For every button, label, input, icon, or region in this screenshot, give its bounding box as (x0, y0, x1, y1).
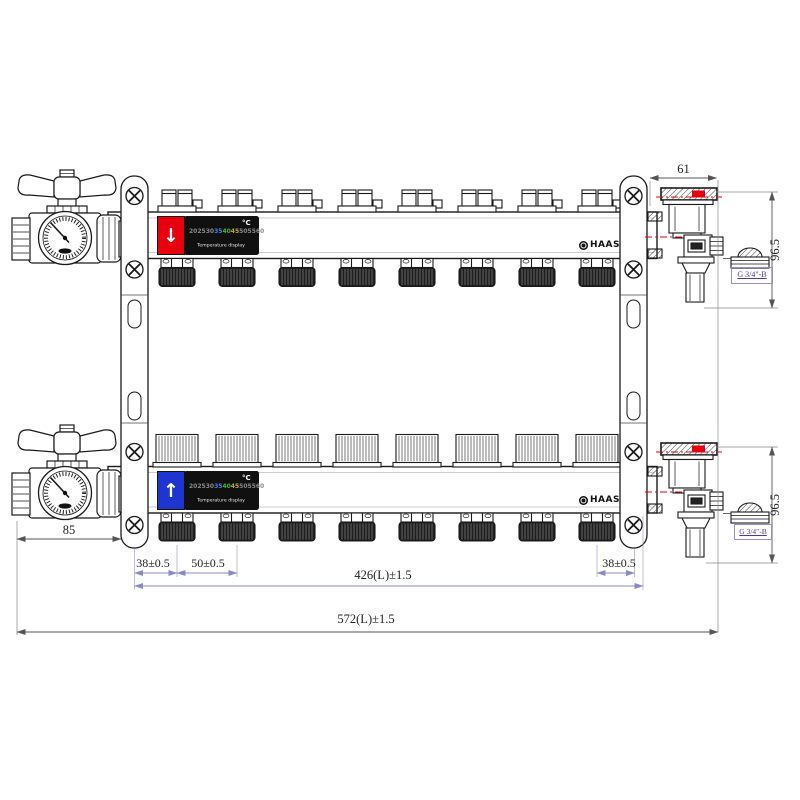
scale-value: 30 (206, 483, 214, 490)
scale-value: 30 (206, 228, 214, 235)
scale-value: 25 (197, 228, 205, 235)
dim-manifold-length: 426(L)±1.5 (283, 569, 483, 583)
dim-valve-offset: 85 (39, 524, 99, 538)
supply-outlet-connectors (159, 259, 615, 287)
dim-last-outlet: 38±0.5 (591, 557, 647, 570)
supply-ball-valve (12, 170, 125, 265)
up-arrow-icon: ↑ (158, 472, 185, 510)
scale-value: 55 (248, 228, 256, 235)
scale-value: 50 (239, 483, 247, 490)
down-arrow-icon: ↓ (158, 217, 185, 255)
haas-logo-text: HAAS (590, 495, 620, 505)
haas-logo-icon (579, 241, 588, 250)
scale-value: 50 (239, 228, 247, 235)
scale-value: 35 (214, 228, 222, 235)
air-vent-drain-assembly-top (648, 188, 769, 302)
display-unit: °C (242, 474, 251, 482)
scale-value: 45 (231, 228, 239, 235)
dim-side-height-bottom: 96.5 (769, 488, 783, 522)
display-caption: Temperature display (192, 243, 250, 248)
scale-value: 60 (256, 483, 264, 490)
scale-value: 40 (222, 483, 230, 490)
technical-drawing-canvas: ↓ °C 20 25 30 35 40 45 50 55 60 Temperat… (0, 0, 800, 800)
haas-logo-text: HAAS (590, 240, 620, 250)
mounting-bracket-right (620, 176, 647, 548)
thread-spec-label-bottom: G 3/4"-B (734, 524, 772, 540)
temperature-scale: 20 25 30 35 40 45 50 55 60 (189, 228, 255, 235)
return-outlet-connectors (159, 513, 615, 541)
dim-first-outlet: 38±0.5 (125, 557, 181, 570)
dim-overall-length: 572(L)±1.5 (266, 613, 466, 627)
scale-value: 20 (189, 483, 197, 490)
scale-value: 60 (256, 228, 264, 235)
display-unit: °C (242, 219, 251, 227)
dim-outlet-pitch: 50±0.5 (179, 557, 237, 570)
thread-spec-label-top: G 3/4"-B (731, 267, 773, 284)
brand-logo: HAAS (579, 239, 620, 251)
brand-logo: HAAS (579, 494, 620, 506)
temperature-scale: 20 25 30 35 40 45 50 55 60 (189, 483, 255, 490)
scale-value: 40 (222, 228, 230, 235)
return-ball-valve (12, 425, 125, 520)
scale-value: 55 (248, 483, 256, 490)
manifold-drawing (0, 0, 800, 800)
mounting-bracket-left (121, 176, 148, 548)
scale-value: 35 (214, 483, 222, 490)
dim-side-height-top: 96.5 (769, 233, 783, 267)
haas-logo-icon (579, 496, 588, 505)
supply-valve-cap-fittings (158, 190, 622, 212)
return-flow-knobs (153, 435, 621, 468)
dim-top-width: 61 (650, 163, 717, 177)
display-caption: Temperature display (192, 498, 250, 503)
scale-value: 20 (189, 228, 197, 235)
scale-value: 45 (231, 483, 239, 490)
scale-value: 25 (197, 483, 205, 490)
